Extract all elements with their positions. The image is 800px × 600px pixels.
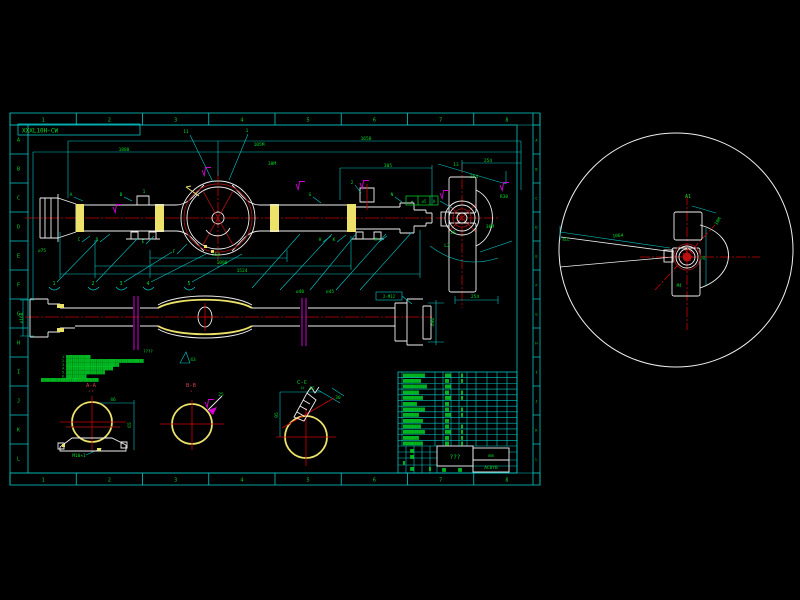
bom-cell: ▓▓	[445, 424, 449, 429]
annotation-text: ▓▓	[410, 467, 414, 471]
bottom-ruler-zone: 6	[373, 478, 376, 484]
annotation-text: 1064	[612, 233, 624, 240]
left-ruler-zone: F	[17, 283, 20, 289]
annotation-text: K	[333, 237, 336, 243]
left-ruler-zone: K	[17, 428, 20, 434]
top-ruler-zone: 1	[42, 118, 45, 124]
bom-cell: ▓▓▓▓▓▓▓▓▓▓	[403, 418, 423, 423]
annotation-text: M10×1	[72, 453, 86, 459]
annotation-text: 46	[110, 397, 116, 403]
right-ruler-zone: L	[535, 458, 537, 462]
bom-cell: ▓▓▓▓▓▓▓▓▓▓	[403, 395, 423, 400]
annotation-text: 1880	[119, 147, 130, 153]
top-ruler-zone: 7	[439, 118, 442, 124]
top-ruler-zone: 4	[240, 118, 243, 124]
bom-cell: ▓	[461, 378, 463, 383]
bottom-ruler-zone: 5	[307, 478, 310, 484]
annotation-text: 1090	[217, 260, 228, 266]
right-ruler-zone: D	[535, 226, 537, 230]
title-text: ???	[450, 454, 461, 461]
bom-cell: ▓▓▓	[445, 372, 451, 377]
bom-cell: ▓▓	[445, 401, 449, 406]
annotation-text: ⌀45	[326, 289, 334, 295]
bom-cell: ▓▓▓▓▓▓▓▓▓	[403, 424, 421, 429]
bom-cell: ▓▓▓	[445, 429, 451, 434]
bom-cell: ▓▓	[445, 435, 449, 440]
annotation-text: ▓▓	[442, 468, 446, 472]
annotation-text: 2	[351, 180, 354, 186]
right-ruler-zone: G	[535, 313, 537, 317]
annotation-text: 65	[127, 422, 133, 428]
annotation-text: ⌀90	[430, 318, 436, 326]
annotation-text: 1658	[361, 136, 372, 142]
annotation-text: 30	[701, 255, 706, 260]
annotation-text: E	[142, 239, 145, 245]
annotation-text: ▓▓	[410, 449, 414, 453]
bom-cell: ▓▓▓	[445, 412, 451, 417]
bom-cell: ▓	[461, 435, 463, 440]
annotation-text: C	[78, 237, 81, 243]
notes-heading: ????	[143, 349, 153, 354]
annotation-text: D	[96, 237, 99, 243]
annotation-text: 2-M12	[383, 294, 396, 299]
bom-cell: ▓▓	[445, 418, 449, 423]
sheet-label: XXXL10H-CW	[22, 128, 59, 135]
bom-cell: ▓▓▓	[445, 384, 451, 389]
annotation-text: 1	[246, 128, 249, 134]
bottom-ruler-zone: 2	[108, 478, 111, 484]
annotation-text: ▓	[429, 467, 431, 471]
annotation-text: 43	[190, 357, 196, 363]
bom-cell: ▓▓▓▓▓▓▓▓▓▓▓▓	[403, 384, 427, 389]
annotation-text: 1	[143, 189, 146, 195]
annotation-text: 1	[190, 389, 192, 393]
bom-cell: ▓▓▓	[445, 395, 451, 400]
bom-cell: ▓▓▓▓▓▓▓	[403, 401, 417, 406]
annotation-text: 14	[300, 386, 304, 390]
right-ruler-zone: F	[535, 284, 537, 288]
annotation-text: ⌀40	[296, 289, 304, 295]
annotation-text: A1	[685, 194, 691, 200]
right-ruler-zone: J	[535, 400, 537, 404]
top-ruler-zone: 3	[174, 118, 177, 124]
bom-cell: ▓▓	[445, 441, 449, 446]
bom-cell: ▓▓▓▓▓▓▓▓▓▓▓	[403, 372, 425, 377]
bottom-ruler-zone: 4	[240, 478, 243, 484]
weld-band	[76, 204, 84, 232]
left-ruler-zone: H	[17, 341, 20, 347]
code-text: AC8YB	[484, 465, 498, 471]
right-ruler-zone: E	[535, 255, 537, 259]
annotation-text: 254	[212, 252, 220, 258]
annotation-text: ⌀5	[422, 199, 427, 204]
bom-cell: ▓▓	[445, 389, 449, 394]
balloon-number: 4	[146, 281, 149, 287]
bom-cell: ▓	[461, 389, 463, 394]
annotation-text: 4CL	[562, 237, 570, 242]
weld-band	[347, 204, 356, 232]
bom-cell: ▓	[461, 441, 463, 446]
annotation-text: N	[391, 192, 394, 198]
right-ruler-zone: B	[535, 168, 537, 172]
balloon-number: 5	[187, 281, 190, 287]
bom-cell: ▓	[461, 412, 463, 417]
annotation-text: 1524	[237, 268, 248, 274]
bottom-ruler-zone: 1	[42, 478, 45, 484]
annotation-text: H	[319, 237, 322, 243]
bom-cell: ▓	[461, 395, 463, 400]
bom-cell: ▓▓▓▓▓▓▓▓▓▓▓	[403, 429, 425, 434]
top-ruler-zone: 2	[108, 118, 111, 124]
bottom-ruler-zone: 8	[505, 478, 508, 484]
right-ruler-zone: H	[535, 342, 537, 346]
annotation-text: M4	[677, 283, 682, 288]
bom-cell: ▓▓▓▓▓▓▓▓▓	[403, 378, 421, 383]
bom-cell: ▓	[461, 429, 463, 434]
left-ruler-zone: I	[17, 370, 20, 376]
bom-cell: ▓▓▓▓▓▓▓▓	[403, 412, 419, 417]
left-ruler-zone: C	[17, 196, 20, 202]
bom-cell: ▓▓▓▓▓▓▓▓▓▓▓	[403, 406, 425, 411]
bottom-ruler-zone: 7	[439, 478, 442, 484]
annotation-text: F	[173, 249, 176, 255]
annotation-text: ⌀75	[38, 248, 46, 254]
cad-drawing-canvas: XXXL10H-CW 1122334455667788AABBCCDDEEFFG…	[0, 0, 800, 600]
annotation-text: 254	[470, 174, 478, 180]
right-ruler-zone: C	[535, 197, 537, 201]
annotation-text: 30	[335, 395, 341, 401]
left-ruler-zone: D	[17, 225, 20, 231]
annotation-text: R30	[500, 194, 508, 200]
weld-band	[155, 204, 164, 232]
annotation-text: 105M	[254, 142, 265, 148]
annotation-text: B	[120, 192, 123, 198]
balloon-number: 1	[52, 281, 55, 287]
annotation-text: 1 1	[88, 389, 94, 393]
bom-cell: ▓	[461, 372, 463, 377]
bom-cell: ▓	[461, 406, 463, 411]
annotation-text: 25	[450, 230, 456, 236]
annotation-text: M	[375, 237, 378, 243]
left-ruler-zone: L	[17, 457, 20, 463]
left-ruler-zone: E	[17, 254, 20, 260]
bom-cell: ▓▓▓▓▓▓▓▓	[403, 389, 419, 394]
left-ruler-zone: B	[17, 167, 20, 173]
annotation-text: ▓▓	[410, 455, 414, 459]
top-ruler-zone: 5	[307, 118, 310, 124]
annotation-text: 254	[471, 294, 479, 300]
annotation-text: 15	[309, 386, 315, 392]
right-ruler-zone: I	[535, 371, 537, 375]
annotation-text: 95	[274, 412, 280, 418]
bom-cell: ▓	[461, 424, 463, 429]
bom-cell: ▓▓	[445, 378, 449, 383]
annotation-text: 11	[183, 129, 189, 135]
annotation-text: 13	[453, 162, 459, 168]
weld-band	[270, 204, 279, 232]
annotation-text: 30M	[486, 224, 494, 230]
bom-cell: ▓▓▓▓▓▓▓▓▓▓	[403, 441, 423, 446]
annotation-text: 254	[484, 158, 492, 164]
annotation-text: L2	[444, 243, 450, 249]
annotation-text: 25	[218, 392, 224, 398]
annotation-text: ▓▓▓▓▓▓▓▓▓▓▓▓▓▓▓▓▓▓▓▓▓▓▓▓▓▓▓▓▓▓	[41, 378, 99, 382]
balloon-number: 3	[119, 281, 122, 287]
annotation-text: 305	[384, 163, 392, 169]
annotation-text: ▓	[403, 461, 405, 465]
bottom-ruler-zone: 3	[174, 478, 177, 484]
top-ruler-zone: 8	[505, 118, 508, 124]
bom-cell: ▓▓	[445, 406, 449, 411]
annotation-text: G	[309, 192, 312, 198]
left-ruler-zone: J	[17, 399, 20, 405]
annotation-text: ⌀168	[19, 312, 25, 323]
annotation-text: ▓▓	[458, 468, 462, 472]
top-ruler-zone: 6	[373, 118, 376, 124]
annotation-text: A	[70, 192, 73, 198]
bom-cell: ▓▓▓▓▓▓▓▓	[403, 435, 419, 440]
units-text: mm	[488, 454, 494, 459]
balloon-number: 2	[91, 281, 94, 287]
annotation-text: 30M	[268, 161, 276, 167]
left-ruler-zone: A	[17, 138, 20, 144]
